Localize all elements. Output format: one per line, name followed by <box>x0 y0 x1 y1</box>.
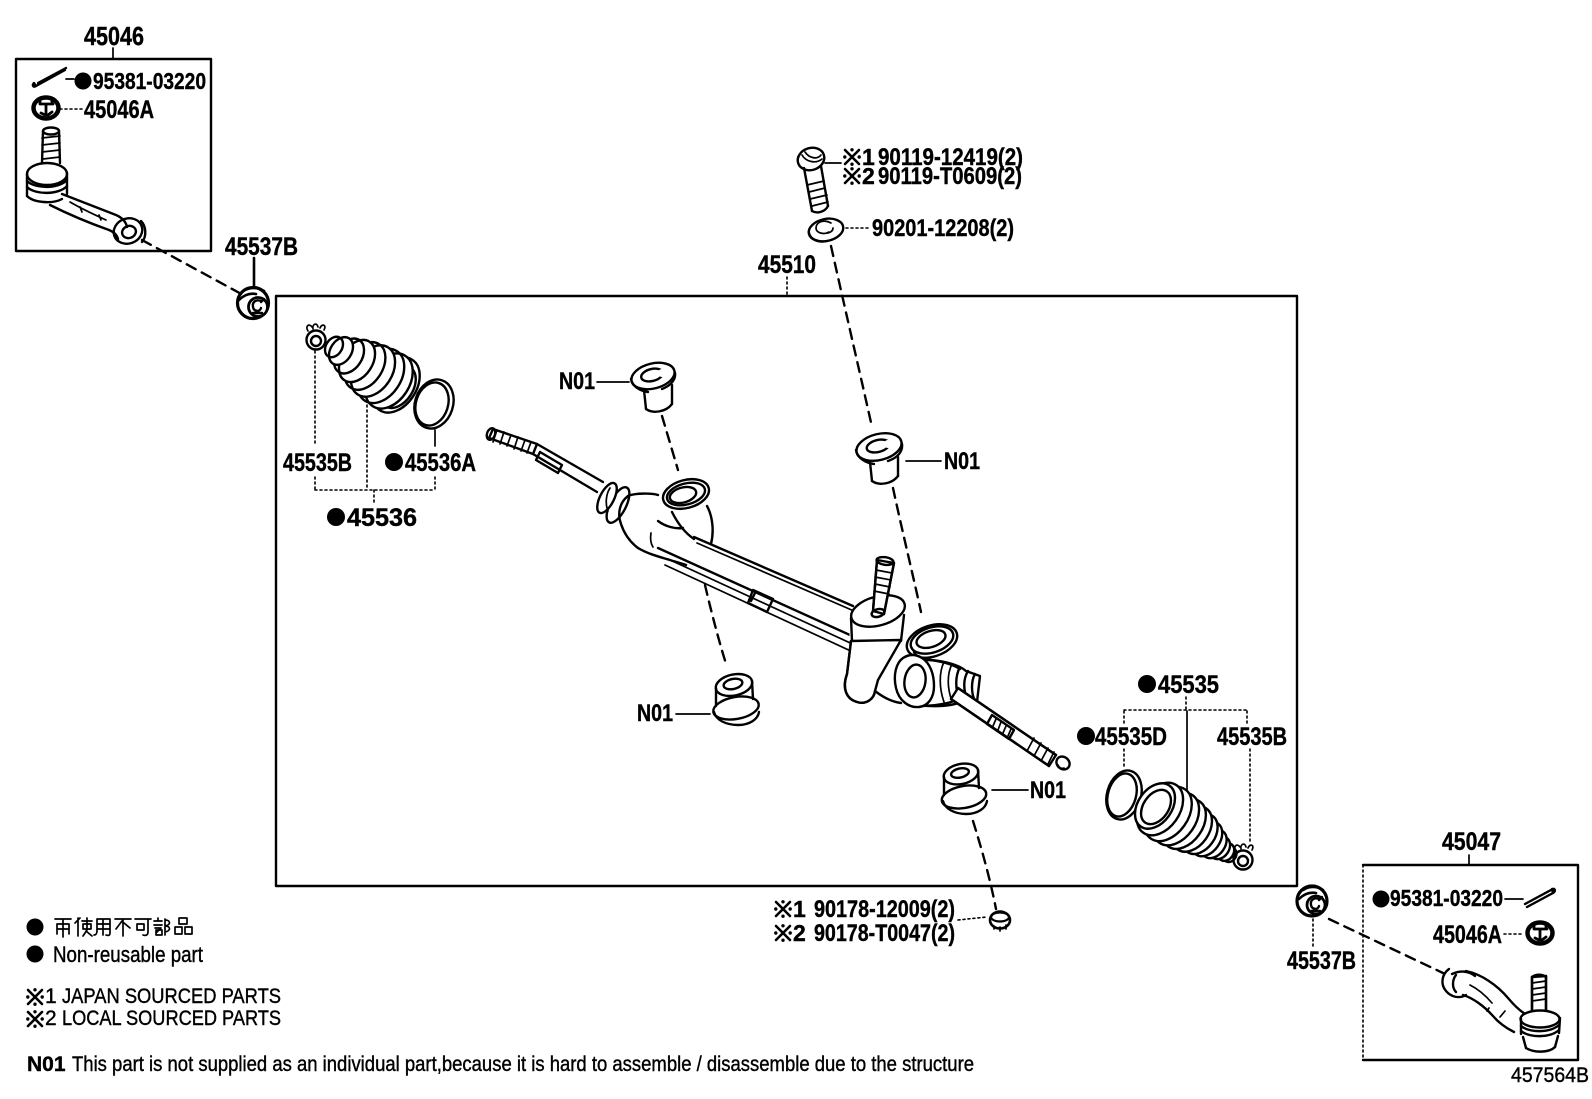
svg-text:45537B: 45537B <box>1287 947 1356 975</box>
svg-text:45535: 45535 <box>1158 671 1219 699</box>
svg-text:90178-12009(2): 90178-12009(2) <box>814 896 955 923</box>
svg-text:This part is not supplied as a: This part is not supplied as an individu… <box>72 1053 974 1076</box>
svg-text:45046A: 45046A <box>1433 921 1502 949</box>
svg-text:457564B: 457564B <box>1511 1064 1589 1087</box>
svg-text:90178-T0047(2): 90178-T0047(2) <box>814 920 955 947</box>
svg-text:N01: N01 <box>1030 777 1066 804</box>
svg-text:2: 2 <box>862 163 875 189</box>
svg-text:Non-reusable part: Non-reusable part <box>53 942 203 967</box>
svg-text:45047: 45047 <box>1442 828 1501 856</box>
svg-text:N01: N01 <box>27 1053 66 1076</box>
svg-text:45046: 45046 <box>84 21 144 51</box>
svg-text:45510: 45510 <box>758 251 816 279</box>
svg-text:45046A: 45046A <box>84 96 154 124</box>
svg-text:45535B: 45535B <box>283 449 352 477</box>
svg-text:N01: N01 <box>944 448 980 475</box>
svg-text:90119-T0609(2): 90119-T0609(2) <box>878 163 1022 190</box>
svg-text:LOCAL SOURCED PARTS: LOCAL SOURCED PARTS <box>62 1007 281 1030</box>
svg-text:95381-03220: 95381-03220 <box>1390 885 1503 911</box>
svg-text:95381-03220: 95381-03220 <box>93 68 206 94</box>
svg-text:N01: N01 <box>637 700 673 727</box>
svg-text:2: 2 <box>45 1007 57 1030</box>
svg-text:1: 1 <box>45 985 57 1008</box>
svg-text:JAPAN SOURCED PARTS: JAPAN SOURCED PARTS <box>62 985 281 1008</box>
svg-text:N01: N01 <box>559 368 595 395</box>
svg-text:1: 1 <box>793 896 806 922</box>
svg-text:45535B: 45535B <box>1217 723 1287 751</box>
svg-text:45536: 45536 <box>347 504 417 532</box>
svg-text:45535D: 45535D <box>1095 723 1167 751</box>
svg-text:45537B: 45537B <box>225 233 298 261</box>
svg-text:45536A: 45536A <box>405 449 476 477</box>
svg-text:90201-12208(2): 90201-12208(2) <box>872 215 1014 242</box>
svg-text:2: 2 <box>793 920 806 946</box>
